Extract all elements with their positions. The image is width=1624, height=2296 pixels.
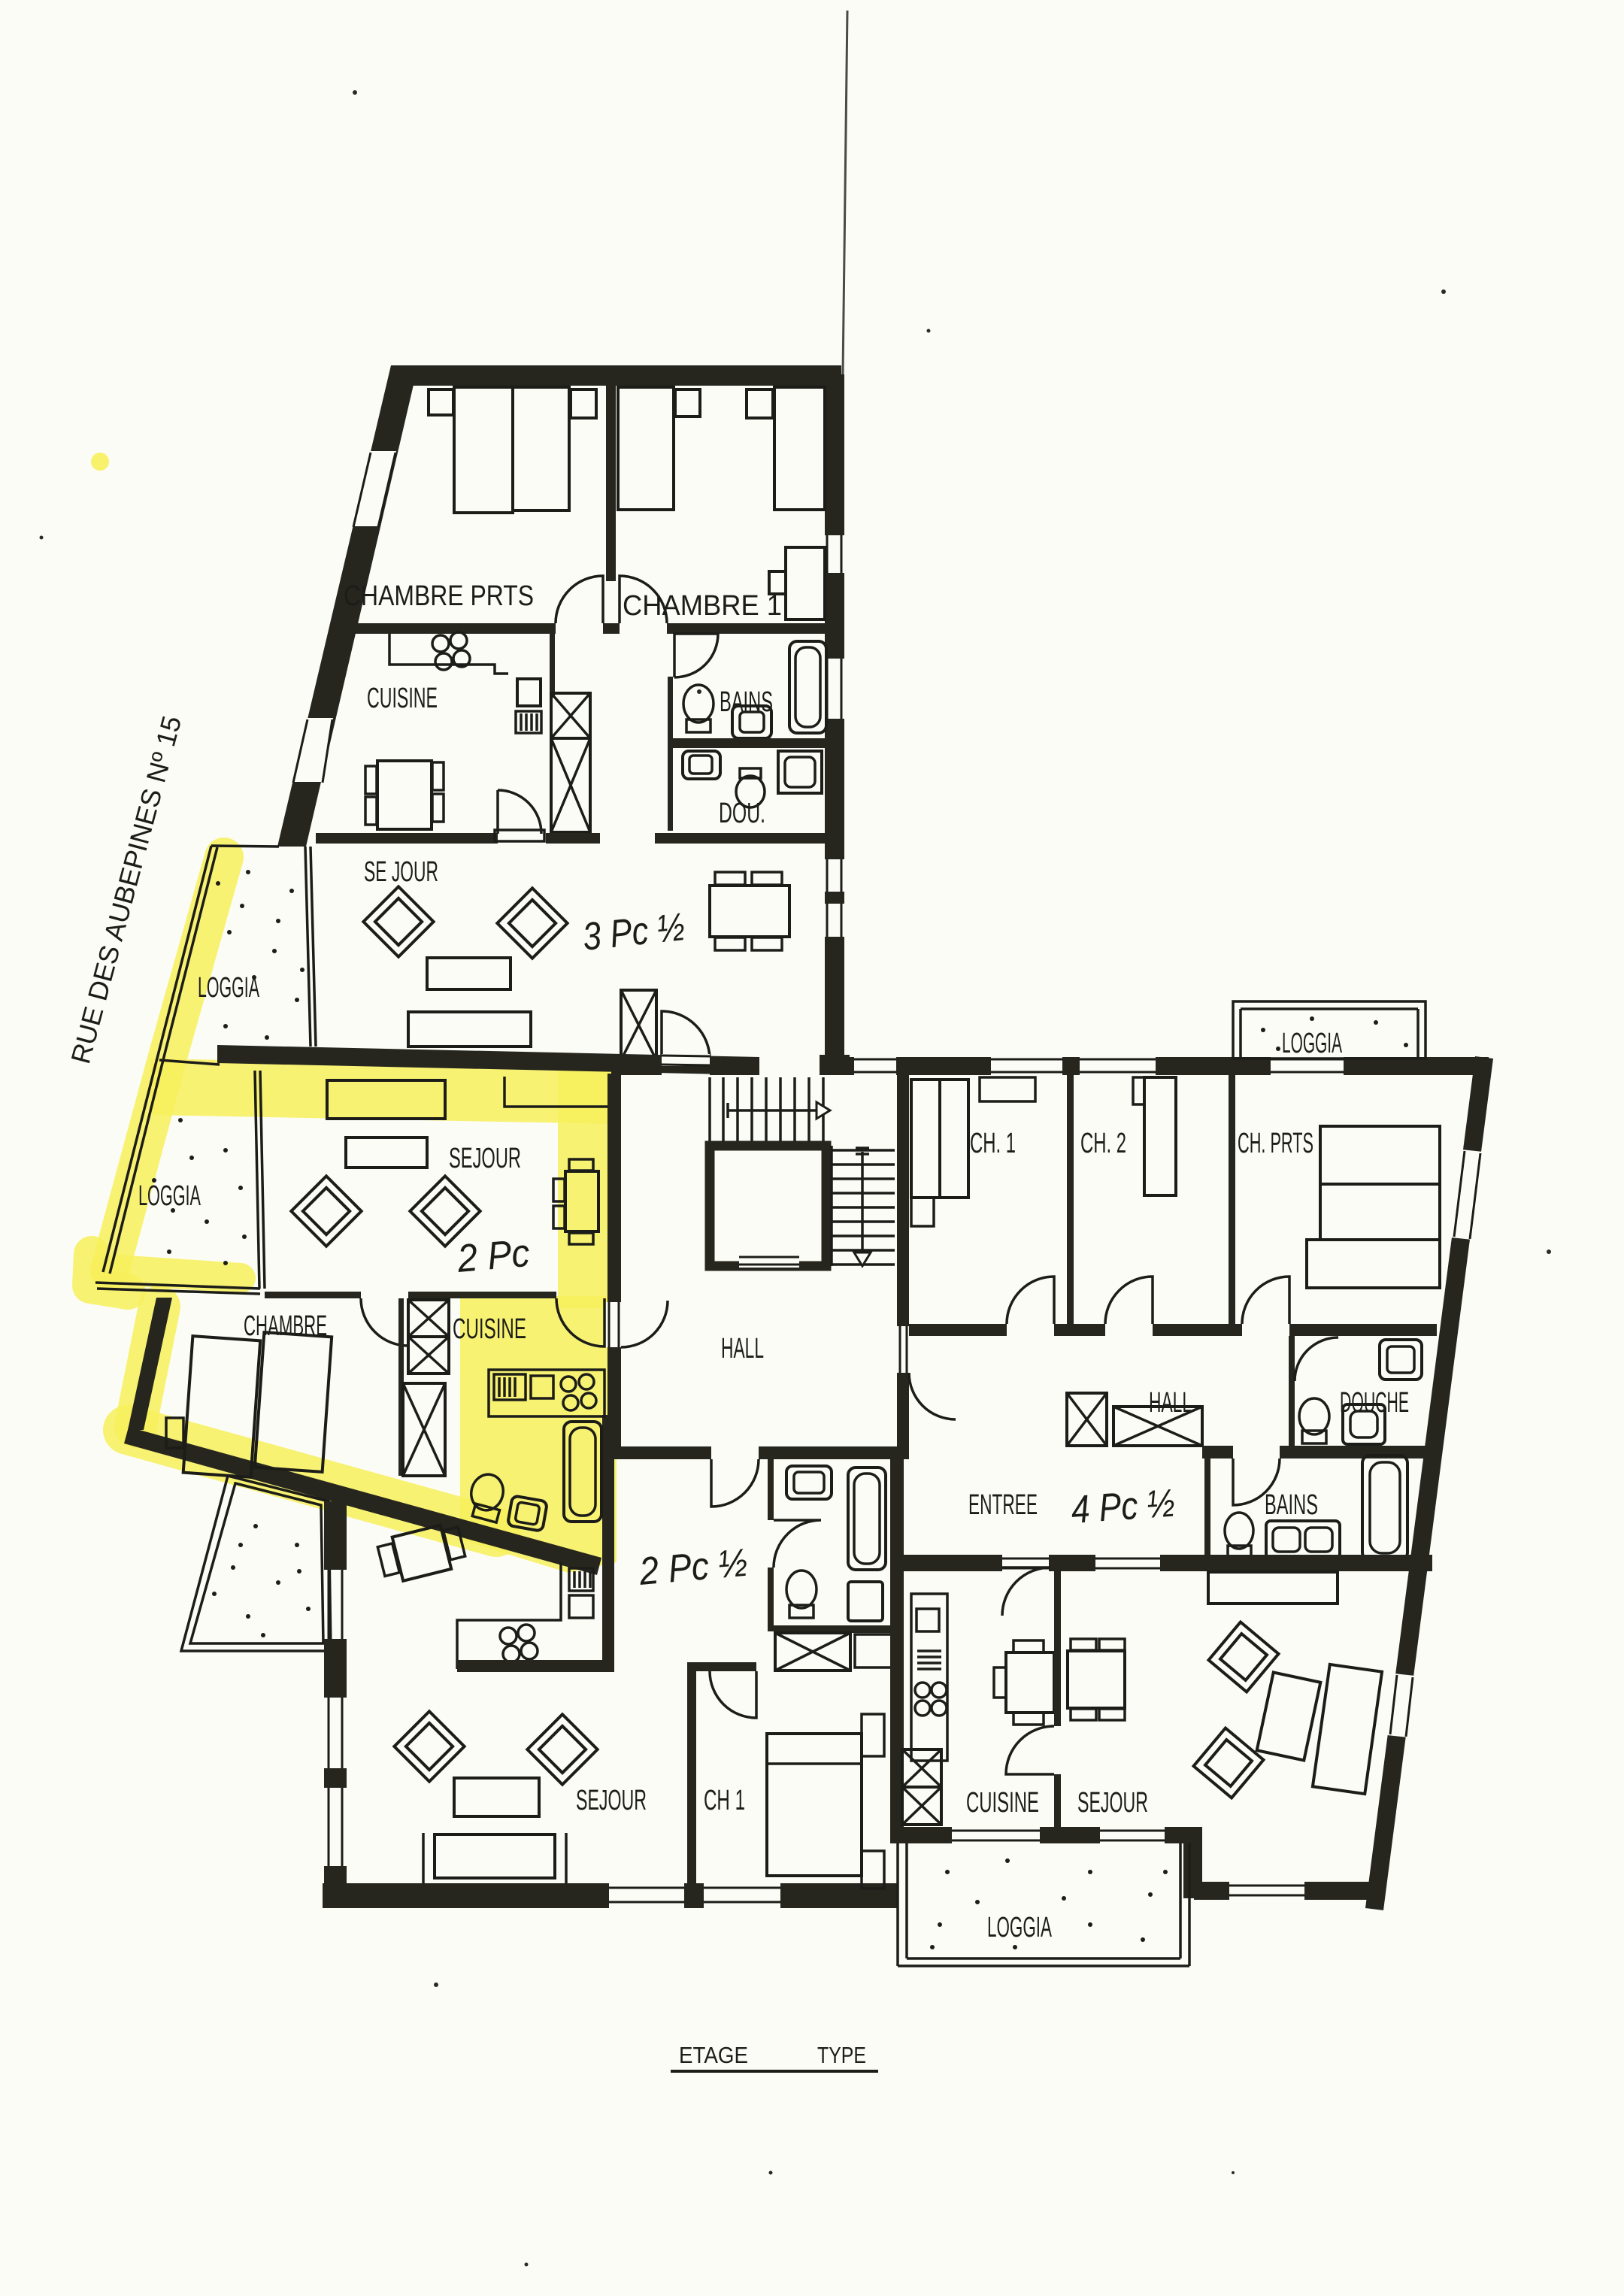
svg-text:LOGGIA: LOGGIA [1282,1028,1342,1059]
svg-text:ENTREE: ENTREE [968,1489,1038,1521]
svg-text:HALL: HALL [721,1333,764,1365]
svg-text:CH. 1: CH. 1 [970,1128,1016,1159]
svg-text:CHAMBRE PRTS: CHAMBRE PRTS [344,580,534,612]
svg-text:ETAGE: ETAGE [679,2042,748,2068]
svg-text:CH. 2: CH. 2 [1080,1128,1126,1159]
svg-text:CUISINE: CUISINE [966,1787,1039,1819]
svg-text:SEJOUR: SEJOUR [576,1785,647,1816]
svg-text:CUISINE: CUISINE [453,1313,526,1345]
svg-text:LOGGIA: LOGGIA [138,1180,201,1212]
svg-text:4 Pc ½: 4 Pc ½ [1070,1481,1177,1531]
svg-text:CH 1: CH 1 [704,1785,745,1816]
svg-text:DOUCHE: DOUCHE [1340,1387,1409,1419]
svg-text:BAINS: BAINS [720,686,773,718]
svg-text:2 Pc: 2 Pc [455,1231,532,1281]
svg-text:LOGGIA: LOGGIA [987,1912,1052,1943]
svg-text:CH. PRTS: CH. PRTS [1238,1128,1313,1159]
svg-text:SEJOUR: SEJOUR [1077,1787,1148,1819]
svg-text:DOU.: DOU. [719,798,765,829]
svg-text:BAINS: BAINS [1265,1489,1318,1521]
svg-text:SEJOUR: SEJOUR [449,1143,521,1174]
svg-text:CHAMBRE 1: CHAMBRE 1 [623,590,782,622]
svg-text:LOGGIA: LOGGIA [198,972,259,1004]
svg-text:TYPE: TYPE [817,2042,866,2068]
svg-text:CUISINE: CUISINE [367,683,438,714]
svg-text:SE JOUR: SE JOUR [364,856,438,888]
